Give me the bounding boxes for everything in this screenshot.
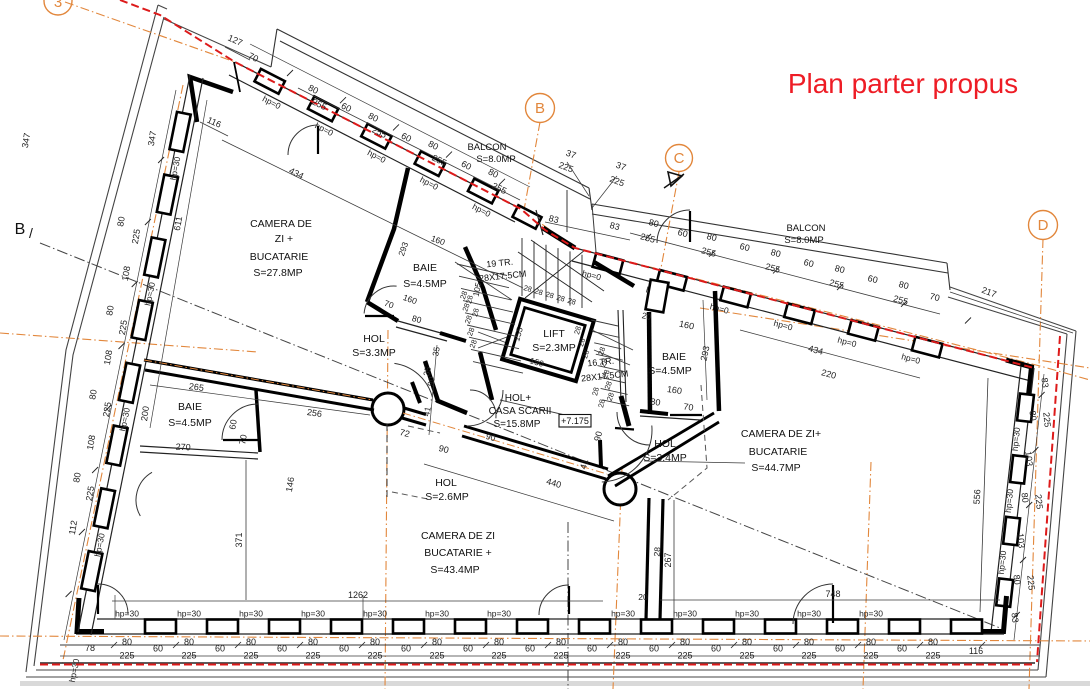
svg-text:556: 556: [971, 489, 982, 505]
svg-text:60: 60: [773, 644, 783, 654]
svg-text:270: 270: [175, 442, 191, 453]
svg-text:80: 80: [650, 396, 661, 407]
svg-text:BALCON: BALCON: [786, 223, 825, 234]
svg-text:80: 80: [680, 637, 690, 647]
svg-text:225: 225: [491, 651, 506, 661]
svg-text:80: 80: [308, 637, 318, 647]
svg-text:80: 80: [432, 637, 442, 647]
svg-text:S=4.5MP: S=4.5MP: [403, 278, 446, 290]
svg-text:CAMERA DE ZI: CAMERA DE ZI: [421, 530, 495, 542]
svg-text:225: 225: [1033, 494, 1045, 510]
svg-text:225: 225: [367, 651, 382, 661]
svg-text:41: 41: [421, 406, 433, 417]
svg-text:ZI +: ZI +: [275, 233, 293, 245]
svg-text:225: 225: [1025, 575, 1037, 591]
svg-text:225: 225: [863, 651, 878, 661]
svg-text:S=44.7MP: S=44.7MP: [751, 462, 800, 474]
svg-text:BAIE: BAIE: [662, 351, 686, 363]
svg-text:60: 60: [897, 644, 907, 654]
svg-text:80: 80: [184, 637, 194, 647]
svg-text:BUCATARIE: BUCATARIE: [749, 446, 808, 458]
svg-text:S=3.4MP: S=3.4MP: [643, 452, 686, 464]
svg-text:78: 78: [85, 643, 95, 653]
svg-text:80: 80: [1027, 410, 1038, 421]
svg-text:116: 116: [969, 646, 983, 656]
svg-text:225: 225: [553, 651, 568, 661]
svg-text:C: C: [674, 150, 685, 167]
svg-text:S=2.6MP: S=2.6MP: [425, 491, 468, 503]
svg-text:225: 225: [429, 651, 444, 661]
svg-text:80: 80: [87, 389, 99, 401]
svg-text:80: 80: [804, 637, 814, 647]
svg-text:103: 103: [1023, 451, 1035, 467]
svg-text:60: 60: [649, 644, 659, 654]
svg-text:225: 225: [119, 651, 134, 661]
svg-text:60: 60: [835, 644, 845, 654]
svg-text:hp=30: hp=30: [673, 609, 697, 619]
svg-text:hp=30: hp=30: [797, 609, 821, 619]
svg-text:80: 80: [556, 637, 566, 647]
svg-text:hp=30: hp=30: [487, 609, 511, 619]
svg-text:225: 225: [1041, 412, 1053, 428]
svg-text:60: 60: [401, 644, 411, 654]
svg-text:hp=30: hp=30: [859, 609, 883, 619]
svg-text:S=8.0MP: S=8.0MP: [784, 235, 823, 246]
svg-text:HOL+: HOL+: [505, 393, 532, 404]
svg-text:S=2.3MP: S=2.3MP: [532, 342, 575, 354]
svg-text:35: 35: [430, 346, 442, 357]
svg-text:HOL: HOL: [435, 477, 457, 489]
svg-text:S=4.5MP: S=4.5MP: [168, 417, 211, 429]
svg-text:80: 80: [1011, 574, 1022, 585]
svg-text:80: 80: [1019, 492, 1030, 503]
svg-text:225: 225: [305, 651, 320, 661]
svg-text:hp=30: hp=30: [115, 609, 139, 619]
svg-text:D: D: [1038, 217, 1049, 234]
svg-text:CAMERA DE ZI+: CAMERA DE ZI+: [741, 428, 821, 440]
svg-text:BALCON: BALCON: [467, 142, 506, 153]
svg-text:hp=30: hp=30: [611, 609, 635, 619]
svg-text:80: 80: [866, 637, 876, 647]
svg-text:80: 80: [122, 637, 132, 647]
svg-text:20: 20: [638, 592, 648, 602]
svg-text:28: 28: [652, 546, 663, 557]
svg-text:B: B: [15, 221, 26, 238]
svg-text:225: 225: [181, 651, 196, 661]
svg-text:80: 80: [246, 637, 256, 647]
svg-text:225: 225: [925, 651, 940, 661]
svg-text:60: 60: [463, 644, 473, 654]
svg-text:80: 80: [928, 637, 938, 647]
svg-text:103: 103: [1015, 533, 1027, 549]
svg-text:60: 60: [277, 644, 287, 654]
svg-text:hp=30: hp=30: [239, 609, 263, 619]
svg-text:225: 225: [801, 651, 816, 661]
svg-text:225: 225: [677, 651, 692, 661]
svg-text:3: 3: [54, 0, 62, 11]
svg-text:83: 83: [1009, 612, 1020, 623]
svg-text:BAIE: BAIE: [178, 401, 202, 413]
svg-text:748: 748: [825, 589, 840, 599]
svg-text:80: 80: [104, 305, 116, 317]
svg-text:/: /: [29, 225, 33, 241]
svg-text:80: 80: [71, 472, 83, 484]
svg-text:200: 200: [139, 405, 151, 421]
svg-text:225: 225: [615, 651, 630, 661]
svg-text:HOL: HOL: [654, 438, 676, 450]
svg-text:Plan parter propus: Plan parter propus: [788, 68, 1018, 99]
svg-text:371: 371: [234, 532, 244, 547]
svg-text:+7.175: +7.175: [561, 416, 589, 426]
svg-text:80: 80: [742, 637, 752, 647]
svg-text:S=43.4MP: S=43.4MP: [430, 564, 479, 576]
svg-text:hp=30: hp=30: [363, 609, 387, 619]
svg-text:HOL: HOL: [363, 333, 385, 345]
svg-text:83: 83: [1039, 377, 1050, 388]
svg-text:267: 267: [663, 552, 673, 567]
svg-text:60: 60: [525, 644, 535, 654]
svg-text:B: B: [535, 100, 545, 117]
svg-text:BUCATARIE +: BUCATARIE +: [424, 547, 492, 559]
svg-text:CASA SCARII: CASA SCARII: [489, 406, 552, 417]
svg-text:BUCATARIE: BUCATARIE: [250, 251, 309, 263]
svg-text:80: 80: [618, 637, 628, 647]
svg-text:60: 60: [339, 644, 349, 654]
svg-text:hp=30: hp=30: [425, 609, 449, 619]
svg-text:80: 80: [115, 216, 127, 228]
svg-text:60: 60: [711, 644, 721, 654]
svg-text:60: 60: [227, 419, 239, 431]
svg-text:hp=30: hp=30: [301, 609, 325, 619]
svg-text:LIFT: LIFT: [543, 328, 565, 340]
svg-text:70: 70: [237, 434, 249, 446]
svg-text:70: 70: [683, 401, 694, 412]
svg-text:hp=30: hp=30: [177, 609, 201, 619]
svg-text:S=4.5MP: S=4.5MP: [648, 365, 691, 377]
svg-text:BAIE: BAIE: [413, 262, 437, 274]
svg-text:225: 225: [243, 651, 258, 661]
svg-text:S=8.0MP: S=8.0MP: [476, 154, 515, 165]
svg-text:hp=30: hp=30: [735, 609, 759, 619]
svg-text:S=15.8MP: S=15.8MP: [494, 419, 541, 430]
svg-text:60: 60: [587, 644, 597, 654]
svg-text:60: 60: [215, 644, 225, 654]
svg-text:1262: 1262: [348, 590, 368, 600]
svg-text:80: 80: [370, 637, 380, 647]
svg-text:S=3.3MP: S=3.3MP: [352, 347, 395, 359]
svg-text:80: 80: [494, 637, 504, 647]
svg-text:S=27.8MP: S=27.8MP: [253, 267, 302, 279]
svg-text:60: 60: [153, 644, 163, 654]
svg-text:225: 225: [739, 651, 754, 661]
svg-text:CAMERA DE: CAMERA DE: [250, 218, 312, 230]
